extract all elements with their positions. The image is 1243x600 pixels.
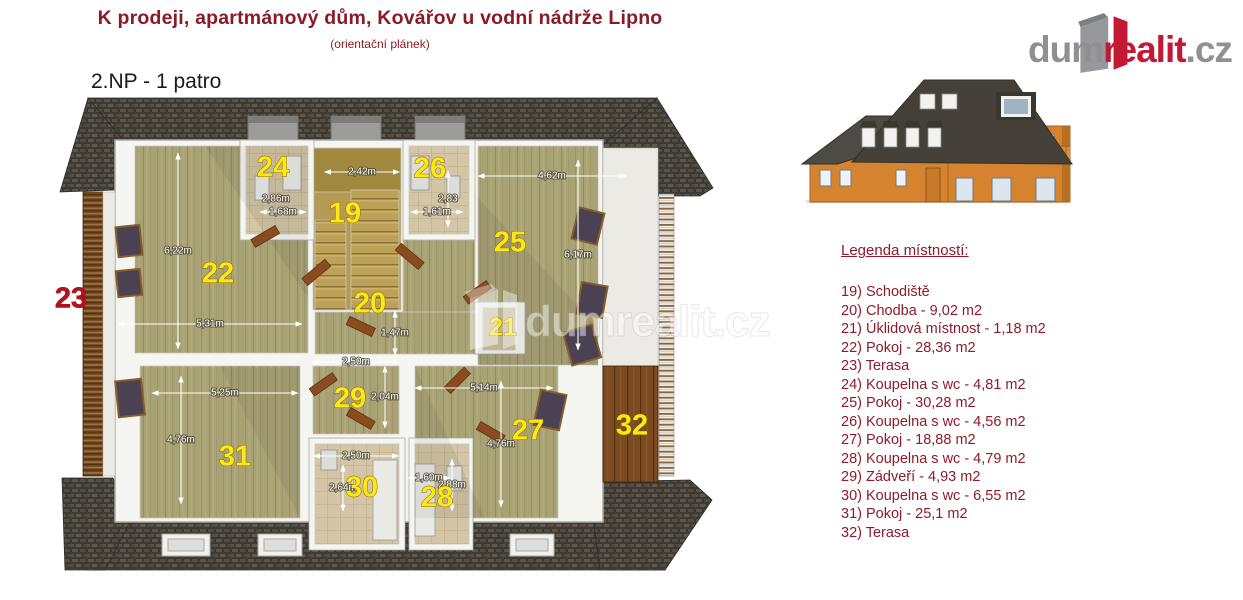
room-number-20: 20 [354,288,386,320]
dimension-text: 4,76m [167,435,195,446]
room-number-27: 27 [512,415,544,447]
legend-item: 20) Chodba - 9,02 m2 [841,302,1141,321]
room-number-23: 23 [55,283,87,315]
room-number-24: 24 [257,152,289,184]
legend-item: 24) Koupelna s wc - 4,81 m2 [841,376,1141,395]
room-number-26: 26 [414,153,446,185]
legend-item: 26) Koupelna s wc - 4,56 m2 [841,413,1141,432]
legend-item: 19) Schodiště [841,283,1141,302]
dimension-text: 2,42m [348,167,376,178]
legend-item: 31) Pokoj - 25,1 m2 [841,505,1141,524]
terrace-left-23 [83,192,115,476]
dimension-text: 5,31m [196,319,224,330]
dimension-text: 5,14m [470,383,498,394]
room-number-28: 28 [421,482,453,514]
dimension-text: 2,83 [438,194,458,205]
room-number-19: 19 [329,198,361,230]
floorplan: 2,42m2,86m1,68m2,831,61m4,62m6,17m6,22m5… [55,88,720,593]
logo-text-prefix: dum [1028,29,1103,70]
house-rendering [800,72,1080,208]
room-number-30: 30 [346,472,378,504]
dimension-text: 2,04m [371,392,399,403]
page-subtitle: (orientační plánek) [15,37,745,51]
legend-item: 23) Terasa [841,357,1141,376]
dimension-text: 1,68m [269,207,297,218]
room-number-25: 25 [494,227,526,259]
dimension-text: 4,62m [538,171,566,182]
dimension-text: 1,61m [423,207,451,218]
dimension: 2,86m [262,194,290,205]
logo-text-highlight: realit [1103,29,1185,70]
top-dormer-boxes [248,116,465,140]
legend-item: 28) Koupelna s wc - 4,79 m2 [841,450,1141,469]
legend-item: 22) Pokoj - 28,36 m2 [841,339,1141,358]
legend-item: 27) Pokoj - 18,88 m2 [841,431,1141,450]
dimension-text: 6,22m [164,246,192,257]
legend-item: 30) Koupelna s wc - 6,55 m2 [841,487,1141,506]
dumrealit-logo-text: dumrealit.cz [1028,29,1232,71]
room-number-31: 31 [219,441,251,473]
dimension-text: 2,50m [342,357,370,368]
logo-text-suffix: .cz [1186,29,1232,70]
legend-items: 19) Schodiště20) Chodba - 9,02 m221) Úkl… [841,283,1141,542]
room-legend: Legenda místností: 19) Schodiště20) Chod… [841,242,1141,542]
room-number-32: 32 [616,410,648,442]
dimension-text: 4,76m [487,439,515,450]
dimension-text: 2,86m [262,194,290,205]
room-number-29: 29 [334,383,366,415]
dimension-text: 1,47m [381,328,409,339]
page-title: K prodeji, apartmánový dům, Kovářov u vo… [15,7,745,30]
legend-item: 25) Pokoj - 30,28 m2 [841,394,1141,413]
legend-item: 21) Úklidová místnost - 1,18 m2 [841,320,1141,339]
watermark-text: dumrealit.cz [525,297,770,346]
dimension-text: 6,17m [564,250,592,261]
legend-heading: Legenda místností: [841,242,1141,259]
room-number-22: 22 [202,258,234,290]
dimension-text: 5,25m [211,388,239,399]
legend-item: 32) Terasa [841,524,1141,543]
dimension-text: 2,50m [342,451,370,462]
legend-item: 29) Zádveří - 4,93 m2 [841,468,1141,487]
